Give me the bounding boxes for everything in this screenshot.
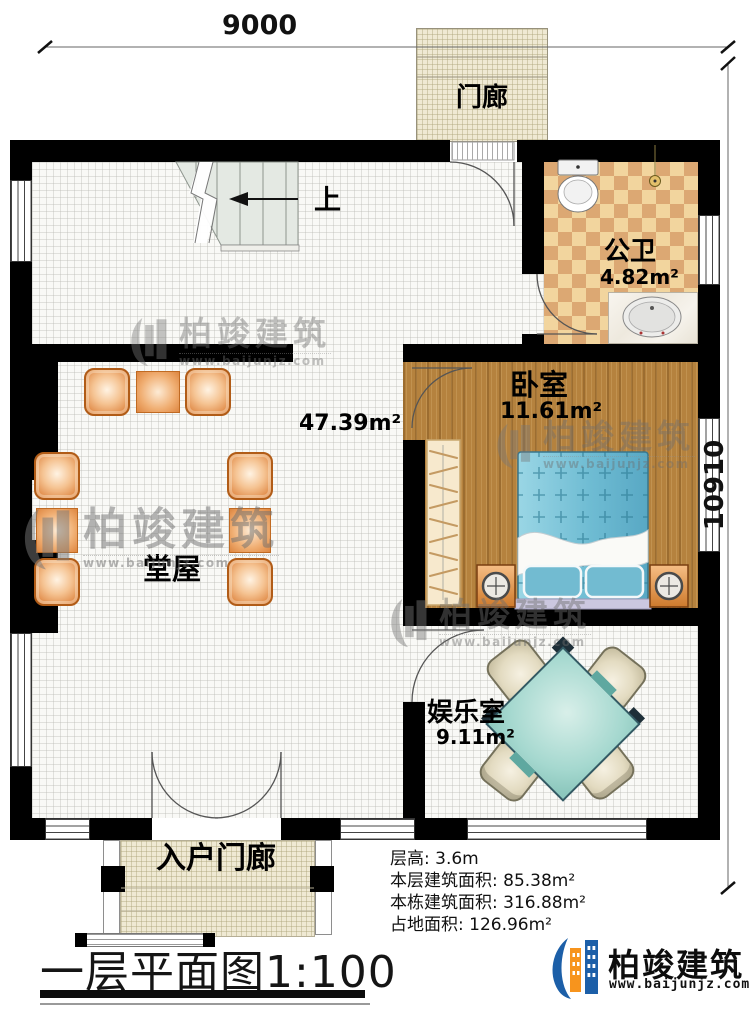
entrance-porch-column-right — [310, 866, 334, 892]
front-door-threshold — [452, 142, 514, 160]
title-underline-thick — [40, 990, 365, 998]
wall-bedroom-north — [403, 344, 720, 362]
window-left-lower — [10, 633, 32, 767]
wall-entertainment-west — [403, 702, 425, 818]
wall-top-right — [517, 140, 720, 162]
room-label-porch: 门廊 — [456, 84, 508, 113]
wall-bottom-seg4 — [415, 818, 467, 840]
brand-logo-icon — [548, 936, 602, 1002]
front-door-threshold-hatch — [452, 142, 514, 160]
entrance-porch-column-left — [101, 866, 125, 892]
hall-chair — [34, 452, 80, 500]
title-underline-thin — [40, 1003, 370, 1005]
stairs-up-label: 上 — [314, 186, 341, 216]
hall-chair — [84, 368, 130, 416]
hall-tea-table — [136, 371, 180, 413]
wall-bedroom-west — [403, 440, 425, 608]
room-area-bedroom: 11.61m² — [500, 400, 602, 424]
room-area-entertainment: 9.11m² — [436, 726, 515, 748]
room-label-bathroom: 公卫 — [604, 238, 656, 267]
hall-chair — [227, 452, 273, 500]
window-bathroom — [698, 215, 720, 285]
room-label-bedroom: 卧室 — [510, 370, 568, 402]
hall-chair — [34, 558, 80, 606]
brand-url-text: www.baijunjz.com — [609, 977, 750, 992]
window-bottom-mid — [340, 818, 415, 840]
room-label-entertainment: 娱乐室 — [427, 699, 505, 728]
wall-bottom-seg2 — [90, 818, 152, 840]
room-label-hall: 堂屋 — [143, 554, 201, 586]
room-label-entrance-porch: 入户门廊 — [156, 842, 276, 875]
hall-tea-table — [36, 508, 78, 553]
wall-left-seg1 — [10, 162, 32, 180]
window-bottom-left — [45, 818, 90, 840]
wall-bottom-seg1 — [10, 818, 45, 840]
dimension-height-label: 10910 — [700, 420, 730, 550]
hall-chair — [227, 558, 273, 606]
wall-top-left — [10, 140, 450, 162]
wall-left-seg2 — [10, 262, 32, 633]
hall-tea-table — [229, 508, 271, 553]
floor-plan-canvas: 门廊 公卫 4.82m² 上 卧室 11.61m² 47.39m² 堂屋 娱乐室… — [0, 0, 750, 1011]
info-footprint-area: 占地面积: 126.96m² — [390, 910, 552, 935]
room-area-hall: 47.39m² — [299, 412, 401, 436]
wall-bathroom-west-seg1 — [522, 162, 544, 274]
window-left-upper — [10, 180, 32, 262]
wall-right-seg1 — [698, 162, 720, 215]
bathroom-sink-counter — [608, 292, 698, 344]
wall-hall-divider — [32, 344, 293, 362]
wall-bottom-seg5 — [647, 818, 720, 840]
room-area-bathroom: 4.82m² — [600, 266, 679, 288]
dimension-width-label: 9000 — [222, 10, 297, 41]
wall-right-seg3 — [698, 552, 720, 818]
wall-bottom-seg3 — [281, 818, 340, 840]
wall-bedroom-south — [403, 608, 720, 626]
hall-chair — [185, 368, 231, 416]
window-entertainment — [467, 818, 647, 840]
